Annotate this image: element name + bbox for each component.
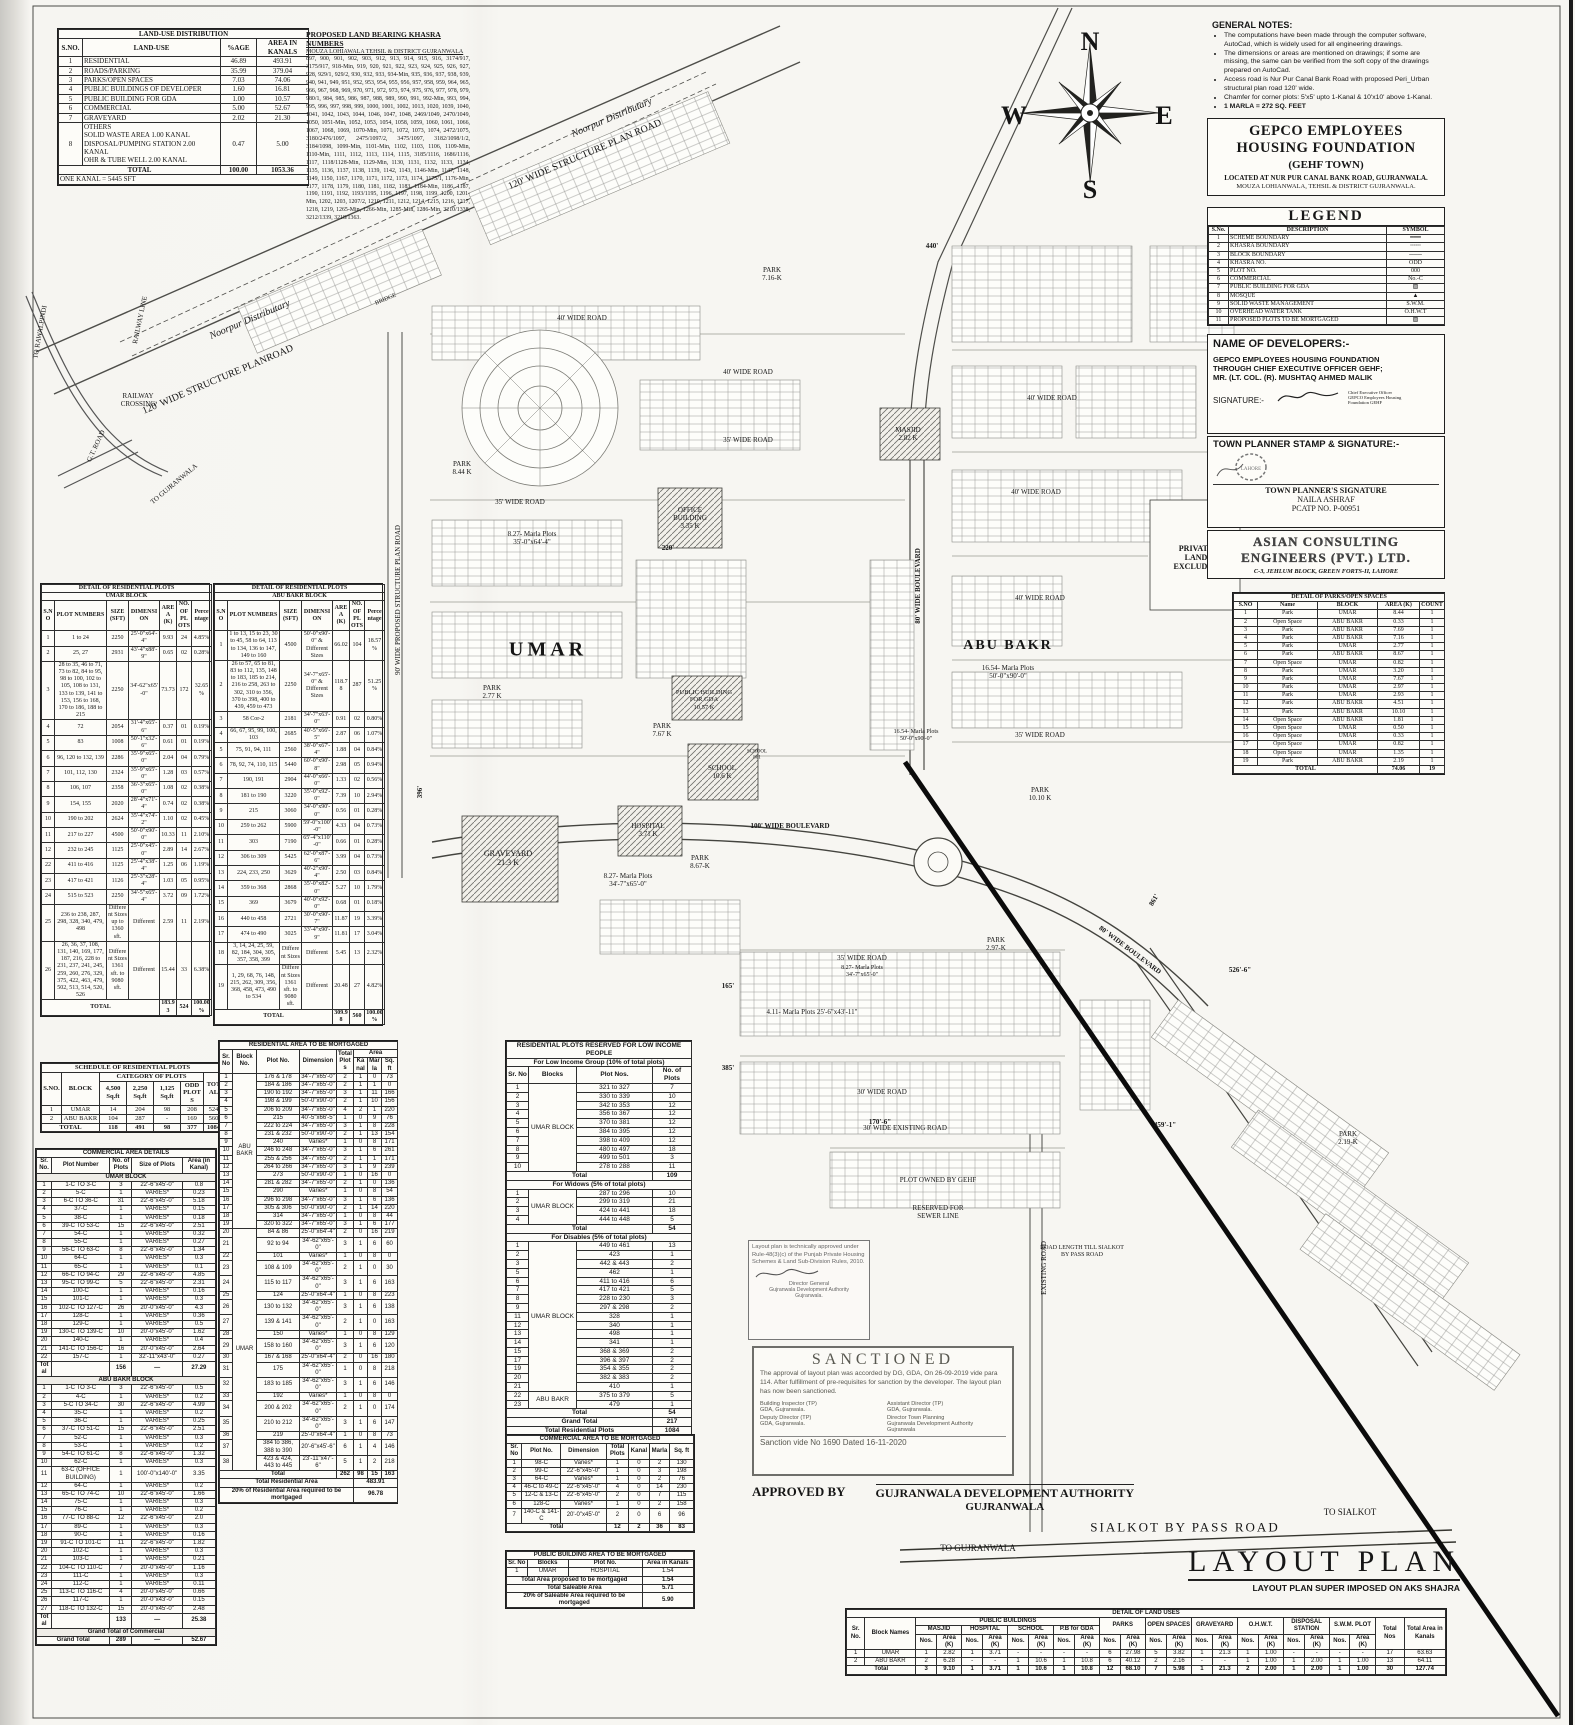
table-cell: 3.72 <box>160 889 177 904</box>
table-cell: 1 <box>337 1114 354 1122</box>
header-cell: 74.06 <box>1378 765 1420 773</box>
table-cell: 2250 <box>280 660 302 711</box>
table-cell: 6 <box>1234 651 1258 659</box>
table-cell: 2 <box>337 1073 354 1081</box>
table-cell: 2 <box>1209 243 1229 251</box>
header-cell: 2 <box>629 1524 650 1532</box>
header-cell: — <box>132 1637 182 1645</box>
table-cell: 0 <box>354 1362 368 1377</box>
table-cell: UMAR <box>865 1649 916 1657</box>
table-cell: 1.62 <box>182 1329 215 1337</box>
table-cell: 1 <box>110 1572 132 1580</box>
table-cell: 34'-7"x65'-0" <box>300 1081 337 1089</box>
table-cell: Varies* <box>300 1188 337 1196</box>
table-cell: 4 <box>507 1484 522 1492</box>
table-cell: 0.3 <box>182 1548 215 1556</box>
planner-title: TOWN PLANNER STAMP & SIGNATURE:- <box>1213 439 1439 450</box>
table-cell: 2.97 <box>1378 684 1420 692</box>
table-cell: 34'-62"x65'-0" <box>300 1300 337 1315</box>
table-cell: 83 <box>55 735 107 750</box>
table-cell: 06 <box>350 727 365 742</box>
header-cell: 262 <box>337 1471 354 1479</box>
table-cell: O.H.W.T <box>1387 308 1445 316</box>
table-cell: 12 <box>653 1127 692 1136</box>
table-cell: 3.35 <box>182 1467 215 1482</box>
table-cell: 8 <box>1234 667 1258 675</box>
table-cell: 17 <box>1234 741 1258 749</box>
table-cell: 1 <box>110 1255 132 1263</box>
table-cell: 1 <box>110 1580 132 1588</box>
table-cell: 15 <box>37 1296 52 1304</box>
table-cell: 75-C <box>52 1499 110 1507</box>
table-cell: 1 <box>37 1385 52 1393</box>
table-cell: 6 <box>37 1222 52 1230</box>
header-cell: 9.10 <box>936 1666 962 1674</box>
table-cell: 169 <box>181 1114 204 1123</box>
table-cell: 1 <box>1420 659 1445 667</box>
table-cell: 34'-62"x65'-0" <box>300 1338 337 1353</box>
table-cell: 13 <box>1234 708 1258 716</box>
table-cell: 10 <box>507 1163 529 1172</box>
table-cell: 100'-0"x140'-0" <box>132 1467 182 1482</box>
table-cell: OVERHEAD WATER TANK <box>1229 308 1387 316</box>
table-cell: Park <box>1258 634 1318 642</box>
table-row: 754-C1VARIES*0.32 <box>37 1230 216 1238</box>
table-cell: 204 <box>127 1105 154 1114</box>
table-cell: 1 <box>653 1251 692 1260</box>
table-cell: 8 <box>368 1432 382 1440</box>
table-row: Sr. No.Block NamesPUBLIC BUILDINGSPARKSO… <box>847 1618 1446 1626</box>
table-cell: 2 <box>337 1315 354 1330</box>
project-subname: (GEHF TOWN) <box>1212 159 1440 171</box>
table-cell: 0.21 <box>182 1556 215 1564</box>
table-cell: 0.19% <box>192 735 212 750</box>
table-cell: 0.47 <box>221 122 257 165</box>
table-cell: - <box>962 1658 982 1666</box>
header-cell <box>52 1613 110 1628</box>
table-cell: 0 <box>629 1467 650 1475</box>
table-cell: 36'-3"x65'-0" <box>129 781 160 796</box>
header-cell: 1 <box>1192 1666 1212 1674</box>
table-row: PUBLIC BUILDING AREA TO BE MORTGAGED <box>507 1552 694 1560</box>
table-cell: 04 <box>350 819 365 834</box>
table-cell: Varies* <box>300 1393 337 1401</box>
table-cell: 3 <box>337 1196 354 1204</box>
table-cell: 9 <box>1209 300 1229 308</box>
table-row: 24-C1VARIES*0.2 <box>37 1393 216 1401</box>
table-cell: 1 <box>337 1432 354 1440</box>
table-cell: 64.11 <box>1404 1658 1445 1666</box>
table-cell: 29 <box>220 1338 233 1353</box>
table-cell: 21 <box>220 1237 233 1252</box>
header-cell: Sr. No. <box>37 1158 52 1173</box>
table-row: 639-C TO 53-C1522'-6"x45'-0"2.51 <box>37 1222 216 1230</box>
table-cell: 22 <box>37 1564 52 1572</box>
header-cell: 309.98 <box>333 1009 350 1024</box>
table-cell: 7.67 <box>1378 675 1420 683</box>
table-cell: 23 <box>37 1572 52 1580</box>
table-cell: 1.03 <box>160 874 177 889</box>
table-cell: 25, 27 <box>55 646 107 661</box>
table-row: 13ParkABU BAKR10.101 <box>1234 708 1445 716</box>
table-cell: 0.11 <box>182 1580 215 1588</box>
table-row: Nos.Area (K)Nos.Area (K)Nos.Area (K)Nos.… <box>847 1634 1446 1649</box>
table-row: 678, 92, 74, 110, 115544060'-0"x90'-8"2.… <box>215 758 385 773</box>
table-cell: 3 <box>42 661 55 720</box>
table-row: 1266-C TO 94-C2922'-6"x45'-0"4.85 <box>37 1271 216 1279</box>
table-row: 1789-C1VARIES*0.3 <box>37 1523 216 1531</box>
table-row: 18129-C1VARIES*0.5 <box>37 1320 216 1328</box>
table-cell: VARIES* <box>132 1556 182 1564</box>
table-cell: 28 to 35, 46 to 71, 73 to 82, 84 to 95, … <box>55 661 107 720</box>
table-cell: 7 <box>649 1492 670 1500</box>
table-row: 198-CVaries*102130 <box>507 1459 694 1467</box>
table-cell: ▨ <box>1387 317 1445 325</box>
table-cell: 8 <box>368 1252 382 1260</box>
table-cell: 84 & 86 <box>257 1229 300 1237</box>
table-row: S.NO.LAND-USE%AGEAREA IN KANALS <box>59 39 309 57</box>
table-cell: 0 <box>629 1492 650 1500</box>
table-cell: 50'-0"x90'-0" <box>300 1131 337 1139</box>
table-cell: VARIES* <box>132 1531 182 1539</box>
table-cell: 10.10 <box>1378 708 1420 716</box>
table-row: 696, 120 to 132, 139228635'-9"x65'-0"2.0… <box>42 751 212 766</box>
table-cell: 1 <box>606 1459 629 1467</box>
table-cell: 24 <box>42 889 55 904</box>
table-cell: 2 <box>653 1303 692 1312</box>
table-cell: 3 <box>337 1090 354 1098</box>
table-cell: MOSQUE <box>1229 292 1387 300</box>
table-cell: Varies* <box>300 1139 337 1147</box>
header-cell: Name <box>1258 602 1318 610</box>
table-cell: 22'-6"x45'-0" <box>132 1247 182 1255</box>
table-cell: 25'-4"x38'-4" <box>129 858 160 873</box>
table-cell: 60 <box>382 1237 398 1252</box>
table-cell: 4 <box>1234 634 1258 642</box>
header-cell: Plot Nos. <box>577 1067 653 1084</box>
table-cell: 5.45 <box>333 942 350 965</box>
table-cell: Different <box>302 942 333 965</box>
table-row: 11-C TO 3-C322'-6"x45'-0"0.8 <box>37 1181 216 1189</box>
header-cell: 133 <box>110 1613 132 1628</box>
table-cell: 78, 92, 74, 110, 115 <box>228 758 280 773</box>
table-cell: 1 <box>337 1252 354 1260</box>
table-cell: - <box>1330 1649 1350 1657</box>
table-cell: 2 <box>507 1251 529 1260</box>
table-row: 22411 to 416112525'-4"x38'-4"1.25061.19% <box>42 858 212 873</box>
table-cell: 0 <box>354 1252 368 1260</box>
table-cell: 1 <box>354 1122 368 1130</box>
table-cell: 0 <box>382 1172 398 1180</box>
table-row: 1062-C1VARIES*0.3 <box>37 1459 216 1467</box>
table-cell: UMAR <box>1318 643 1378 651</box>
table-cell: Open Space <box>1258 725 1318 733</box>
table-cell: 2931 <box>107 646 129 661</box>
table-cell: UMAR <box>1318 741 1378 749</box>
table-cell: 10 <box>110 1490 132 1498</box>
table-cell: 2 <box>42 646 55 661</box>
table-cell: 34'-7"x65'-0" <box>300 1196 337 1204</box>
developers-block: NAME OF DEVELOPERS:- GEPCO EMPLOYEES HOU… <box>1207 334 1445 434</box>
table-cell: 5-C TO 34-C <box>52 1401 110 1409</box>
table-cell: 1.00 <box>1350 1658 1376 1666</box>
header-cell: Total Plots <box>337 1050 354 1074</box>
table-cell: 6 <box>37 1426 52 1434</box>
table-cell: 1 <box>354 1338 368 1353</box>
table-cell: 217 to 227 <box>55 828 107 843</box>
table-cell: 96, 120 to 132, 139 <box>55 751 107 766</box>
table-cell: 2 <box>337 1401 354 1416</box>
planner-stamp-icon: LAHORE <box>1213 450 1273 484</box>
table-cell: 6 <box>368 1300 382 1315</box>
table-cell: 7.16 <box>1378 634 1420 642</box>
table-cell: 12 <box>653 1101 692 1110</box>
table-cell: 17 <box>1375 1649 1404 1657</box>
table-cell: 16 <box>368 1354 382 1362</box>
table-cell: 54-C TO 61-C <box>52 1450 110 1458</box>
table-row: 1064-C1VARIES*0.3 <box>37 1255 216 1263</box>
header-cell: Percentage <box>365 601 385 631</box>
table-row: TOTAL118491983771084 <box>42 1123 224 1132</box>
header-cell: 12 <box>1100 1666 1120 1674</box>
table-cell: 1 <box>1234 610 1258 618</box>
table-cell: 2 <box>337 1081 354 1089</box>
sanctioned-title: SANCTIONED <box>760 1351 1006 1369</box>
table-cell: 19 <box>37 1329 52 1337</box>
table-cell: VARIES* <box>132 1482 182 1490</box>
table-row: 6ParkABU BAKR8.671 <box>1234 651 1445 659</box>
table-cell: 26 <box>220 1300 233 1315</box>
table-row: Total54 <box>507 1224 692 1233</box>
table-cell: 0.2 <box>182 1507 215 1515</box>
table-cell: OTHERS SOLID WASTE AREA 1.00 KANAL DISPO… <box>83 122 221 165</box>
table-cell: 0.56 <box>333 804 350 819</box>
header-cell: Plot No. <box>257 1050 300 1074</box>
table-cell: 0.38% <box>192 797 212 812</box>
table-cell: 2 <box>653 1259 692 1268</box>
table-cell: 76-C <box>52 1507 110 1515</box>
table-cell: 171 <box>382 1155 398 1163</box>
table-cell: 64-C <box>52 1255 110 1263</box>
table-row: 4PUBLIC BUILDINGS OF DEVELOPER1.6016.81 <box>59 85 309 94</box>
table-cell: 354 & 355 <box>577 1365 653 1374</box>
table-cell: 1 <box>354 1416 368 1431</box>
table-cell: 5 <box>37 1418 52 1426</box>
table-cell: 1 <box>1330 1658 1350 1666</box>
table-cell: 17 <box>507 1356 529 1365</box>
table-row: 7190, 191290444'-0"x66'-0"1.33020.56% <box>215 773 385 788</box>
table-cell: 12 <box>507 1321 529 1330</box>
table-cell: 314 <box>257 1212 300 1220</box>
table-cell: 5 <box>215 742 228 757</box>
table-cell: - <box>1192 1658 1212 1666</box>
table-cell: 7.03 <box>221 75 257 84</box>
table-row: TOTAL100.001053.36 <box>59 165 309 174</box>
header-cell: Sr. No. <box>847 1618 865 1650</box>
table-row: 11 to 24225025'-0"x64'-4"9.93244.85% <box>42 631 212 646</box>
table-cell: 210 to 212 <box>257 1416 300 1431</box>
table-row: TOTAL74.0619 <box>1234 765 1445 773</box>
sanctioned-body: The approval of layout plan was accorded… <box>760 1370 1006 1397</box>
table-cell: 6 <box>220 1114 233 1122</box>
table-row: Sr. NoPlot No.DimensionTotal PlotsKanalM… <box>507 1444 694 1459</box>
header-cell: LAND-USE <box>83 39 221 57</box>
table-cell: 40'-2"x90'-4" <box>302 865 333 880</box>
table-cell: - <box>1054 1649 1074 1657</box>
table-cell: 7 <box>1209 284 1229 292</box>
table-cell: 0.5 <box>182 1320 215 1328</box>
header-cell: 98 <box>354 1471 368 1479</box>
table-cell: 66.02 <box>333 631 350 661</box>
table-cell: 139 & 141 <box>257 1315 300 1330</box>
table-cell: 23 <box>220 1261 233 1276</box>
table-cell: 65'-4"x110'-0" <box>302 835 333 850</box>
header-cell: 1 <box>1054 1666 1074 1674</box>
table-cell: 1 <box>110 1320 132 1328</box>
table-row: 11ParkUMAR2.931 <box>1234 692 1445 700</box>
table-cell: 1 <box>110 1499 132 1507</box>
table-row: 435-C1VARIES*0.2 <box>37 1410 216 1418</box>
table-cell: UMAR <box>1318 610 1378 618</box>
table-cell: Different <box>302 965 333 1009</box>
header-cell: Grand Total <box>37 1637 110 1645</box>
table-cell: 50'-0"x90'-0" & Different Sizes <box>302 631 333 661</box>
table-cell: 2.19% <box>192 904 212 941</box>
table-row: 1UMAR12.8213.71----627.9853.82121.311.00… <box>847 1649 1446 1657</box>
table-cell: 8 <box>507 1145 529 1154</box>
table-cell: 261 <box>382 1147 398 1155</box>
table-cell: 112-C <box>52 1580 110 1588</box>
header-cell: DETAIL OF RESIDENTIAL PLOTS <box>215 585 385 593</box>
developers-title: NAME OF DEVELOPERS:- <box>1213 338 1439 350</box>
header-cell: 118 <box>100 1123 127 1132</box>
table-cell: 22'-6"x45'-0" <box>132 1271 182 1279</box>
table-cell: 158 <box>670 1500 694 1508</box>
header-cell: Area (K) <box>936 1634 962 1649</box>
header-cell: Total Area in Kanals <box>1404 1618 1445 1650</box>
table-cell: 1 <box>368 1106 382 1114</box>
table-row: 22104-C TO 110-C720'-0"x45'-0"1.16 <box>37 1564 216 1572</box>
table-cell: 2 <box>653 1365 692 1374</box>
table-cell: 18 <box>37 1320 52 1328</box>
table-cell: 1 <box>507 1459 522 1467</box>
header-cell: 100.00% <box>192 1000 212 1015</box>
header-cell: Area in Kanals <box>642 1560 693 1568</box>
header-cell: AREA IN KANALS <box>257 39 309 57</box>
table-cell: 190 to 192 <box>257 1090 300 1098</box>
table-cell: 1.25 <box>160 858 177 873</box>
table-cell: 15 <box>110 1222 132 1230</box>
consultant-name2: ENGINEERS (PVT.) LTD. <box>1212 550 1440 566</box>
table-row: 1UMAR BLOCK321 to 3277 <box>507 1083 692 1092</box>
table-row: Total2629815163 <box>220 1471 398 1479</box>
table-cell: 6.38% <box>192 941 212 1000</box>
header-cell: Total <box>37 1361 52 1376</box>
table-cell: 2 <box>606 1492 629 1500</box>
table-cell: 12 <box>42 843 55 858</box>
table-row: 1576-C1VARIES*0.2 <box>37 1507 216 1515</box>
table-cell: 499 to 501 <box>577 1154 653 1163</box>
table-cell: VARIES* <box>132 1255 182 1263</box>
table-cell: ▨ <box>1387 284 1445 292</box>
table-cell: 4 <box>110 1589 132 1597</box>
header-cell: Blocks <box>529 1067 577 1084</box>
table-cell: 0.25 <box>182 1418 215 1426</box>
table-row: Total109 <box>507 1171 692 1180</box>
table-cell: 297 & 298 <box>577 1303 653 1312</box>
header-cell: PARKS <box>1100 1618 1146 1634</box>
table-cell: ABU BAKR <box>1318 618 1378 626</box>
table-cell: 10 <box>653 1189 692 1198</box>
table-cell: 3.20 <box>1378 667 1420 675</box>
table-cell: 1 <box>337 1212 354 1220</box>
table-cell: 5 <box>653 1286 692 1295</box>
table-cell: 14 <box>507 1339 529 1348</box>
table-row: 14359 to 368286835'-0"x82'-0"5.27101.79% <box>215 881 385 896</box>
table-row: 15Open SpaceUMAR0.501 <box>1234 725 1445 733</box>
table-cell: 22'-6"x45'-0" <box>132 1515 182 1523</box>
header-cell: Nos. <box>1284 1634 1304 1649</box>
table-cell: 06 <box>177 858 192 873</box>
table-cell: 3.99 <box>333 850 350 865</box>
table-cell: 2 <box>649 1459 670 1467</box>
table-cell: 340 <box>577 1321 653 1330</box>
table-row: 20102-C1VARIES*0.3 <box>37 1548 216 1556</box>
khasra-title: PROPOSED LAND BEARING KHASRA NUMBERS <box>306 30 470 48</box>
table-row: 7Open SpaceUMAR0.821 <box>1234 659 1445 667</box>
header-cell: Marla <box>649 1444 670 1459</box>
table-cell: Different <box>129 904 160 941</box>
table-cell: 10 <box>653 1092 692 1101</box>
table-cell: 12 <box>37 1482 52 1490</box>
table-cell: 34'-7"x63'-0" <box>302 712 333 727</box>
table-cell: 3 <box>653 1295 692 1304</box>
table-cell: 224, 233, 250 <box>228 865 280 880</box>
table-cell: VARIES* <box>132 1523 182 1531</box>
table-row: 3ParkABU BAKR7.691 <box>1234 626 1445 634</box>
table-cell: 22'-6"x45'-0" <box>132 1280 182 1288</box>
table-cell: 5900 <box>280 819 302 834</box>
table-cell: 106, 107 <box>55 781 107 796</box>
table-cell: 375 to 379 <box>577 1391 653 1400</box>
table-row: 11PROPOSED PLOTS TO BE MORTGAGED▨ <box>1209 317 1445 325</box>
table-cell: 22'-6"x45'-0" <box>132 1198 182 1206</box>
table-cell: ROADS/PARKING <box>83 66 221 75</box>
header-cell: UMAR BLOCK <box>42 593 212 601</box>
table-cell: 3 <box>507 1101 529 1110</box>
header-cell: Total <box>37 1613 52 1628</box>
table-cell: 8.67 <box>1378 651 1420 659</box>
table-cell: 1 <box>337 1330 354 1338</box>
table-cell: 8 <box>1209 292 1229 300</box>
table-cell: 98-C <box>522 1459 561 1467</box>
low-income-plots-table: RESIDENTIAL PLOTS RESERVED FOR LOW INCOM… <box>505 1040 692 1446</box>
table-cell: 16.81 <box>257 85 309 94</box>
table-cell: 33 <box>177 941 192 1000</box>
table-cell: 1 <box>653 1312 692 1321</box>
note-item: Access road is Nur Pur Canal Bank Road w… <box>1224 76 1444 94</box>
table-cell: 0.66 <box>182 1589 215 1597</box>
table-cell: 20 <box>507 1374 529 1383</box>
table-cell: 150 <box>257 1330 300 1338</box>
table-cell: 27 <box>220 1315 233 1330</box>
header-cell: S.NO <box>1234 602 1258 610</box>
table-cell: 281 & 282 <box>257 1180 300 1188</box>
header-cell: SIZE (SFT) <box>107 601 129 631</box>
table-cell: 27 <box>350 965 365 1009</box>
header-cell: 19 <box>1420 765 1445 773</box>
table-cell: ▲ <box>1387 292 1445 300</box>
